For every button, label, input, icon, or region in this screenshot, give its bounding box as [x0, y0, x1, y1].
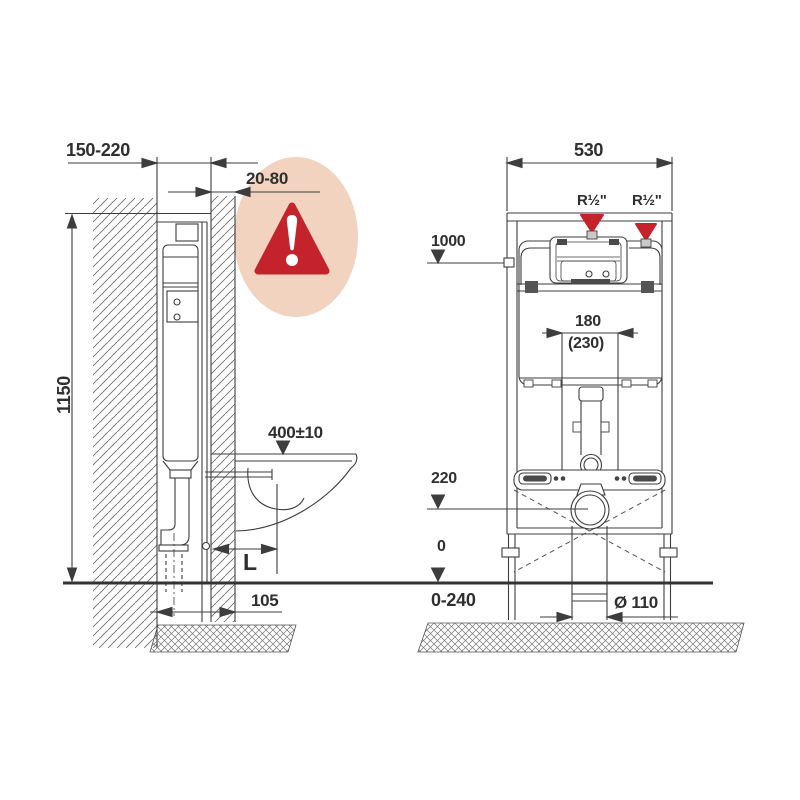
dim-drain-spacing-label: 180	[575, 314, 601, 330]
installation-diagram: 150-220 20-80 1150 400±10 L 105 530 R½" …	[0, 0, 800, 800]
floor-slab-right	[418, 623, 744, 652]
cistern-side	[163, 245, 198, 461]
dim-adjust-range-label: 0-240	[431, 591, 476, 609]
drain-outlet	[571, 491, 609, 529]
front-view-group	[502, 213, 677, 620]
dim-length-label: L	[243, 551, 257, 574]
water-connection-left-icon	[581, 215, 603, 239]
dim-water-height-label: 1000	[431, 234, 465, 250]
panel-hatch	[211, 196, 235, 622]
dim-drain-diameter-label: Ø 110	[614, 594, 658, 611]
dim-width-label: 530	[574, 141, 603, 159]
dim-drain-spacing-alt-label: (230)	[568, 336, 604, 352]
dim-height-label: 1150	[55, 369, 73, 421]
floor-slab-left	[150, 625, 296, 652]
dim-panel-gap-label: 20-80	[246, 170, 288, 187]
water-connection-left-label: R½"	[577, 193, 607, 208]
wall-hatch	[93, 198, 157, 648]
dim-drain-offset-label: 105	[251, 592, 278, 609]
flush-valve-unit	[550, 237, 627, 284]
dim-outlet-height-label: 220	[431, 471, 457, 487]
dim-wall-distance-label: 150-220	[66, 141, 130, 159]
drawing-linework	[0, 0, 800, 800]
dim-floor-label: 0	[437, 539, 446, 555]
water-connection-right-label: R½"	[632, 193, 662, 208]
dim-bowl-height-label: 400±10	[268, 424, 323, 441]
